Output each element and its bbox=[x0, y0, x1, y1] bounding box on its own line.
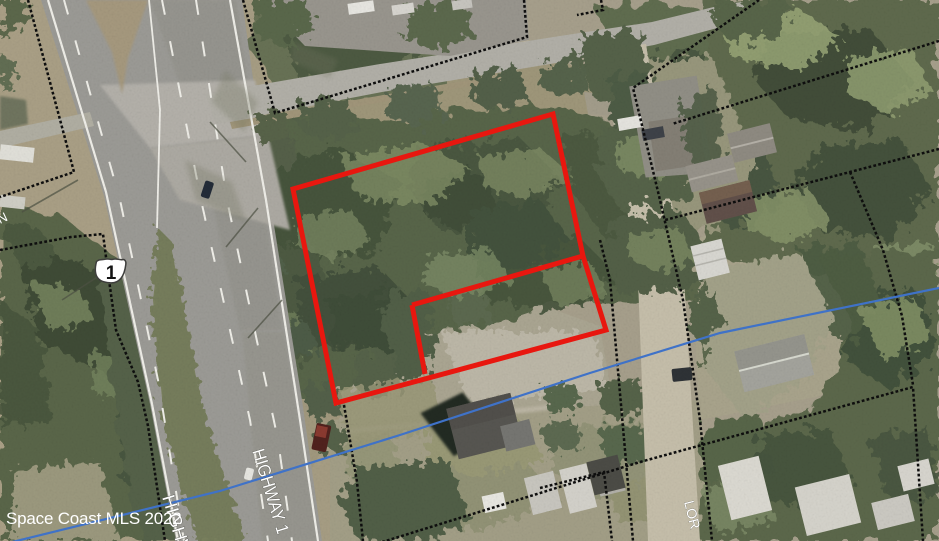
svg-text:1: 1 bbox=[106, 263, 117, 284]
svg-text:Space Coast MLS 2022: Space Coast MLS 2022 bbox=[6, 509, 182, 528]
